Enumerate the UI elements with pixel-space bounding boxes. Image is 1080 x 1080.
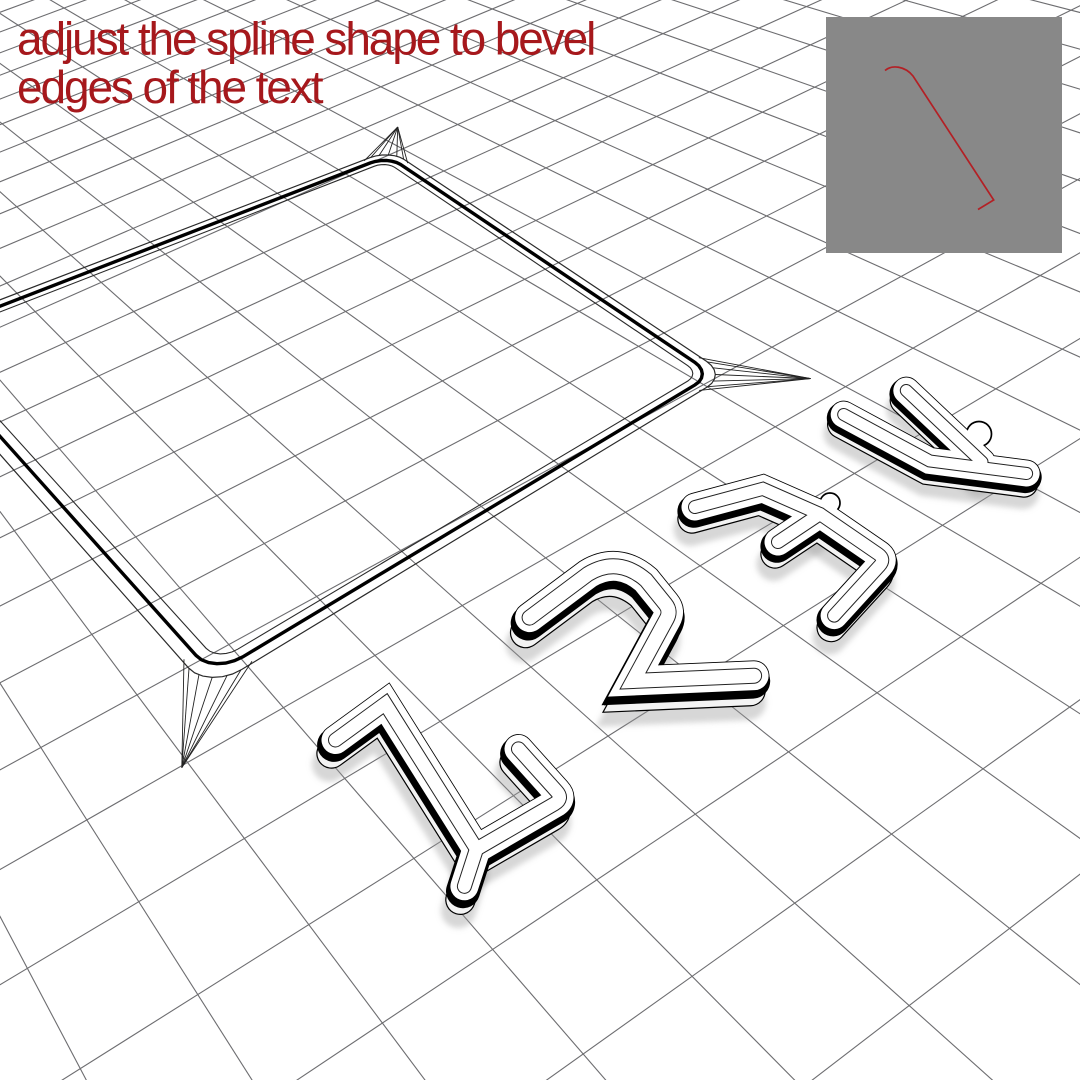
svg-text:edges of the text: edges of the text	[17, 61, 324, 113]
svg-text:adjust the spline shape to bev: adjust the spline shape to bevel	[17, 13, 594, 65]
